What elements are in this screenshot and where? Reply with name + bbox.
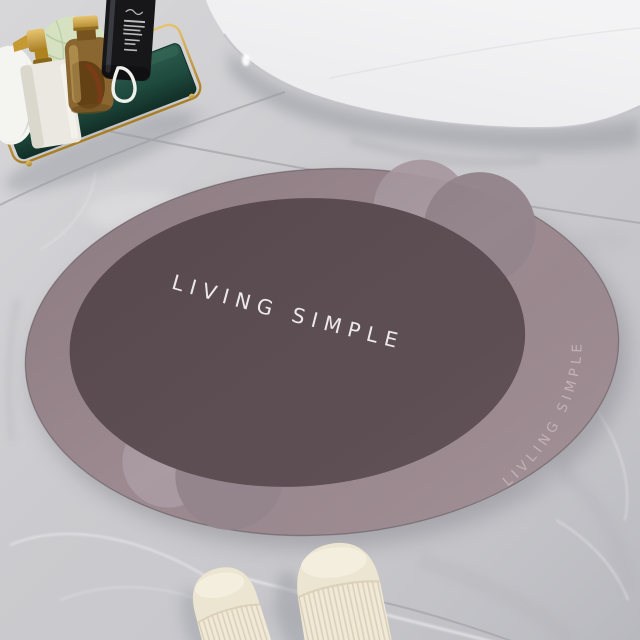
bathtub-highlight <box>242 54 250 66</box>
bathroom-scene: LIVING SIMPLE LIVLING SIMPLE <box>0 0 640 640</box>
black-bottle <box>101 0 156 82</box>
